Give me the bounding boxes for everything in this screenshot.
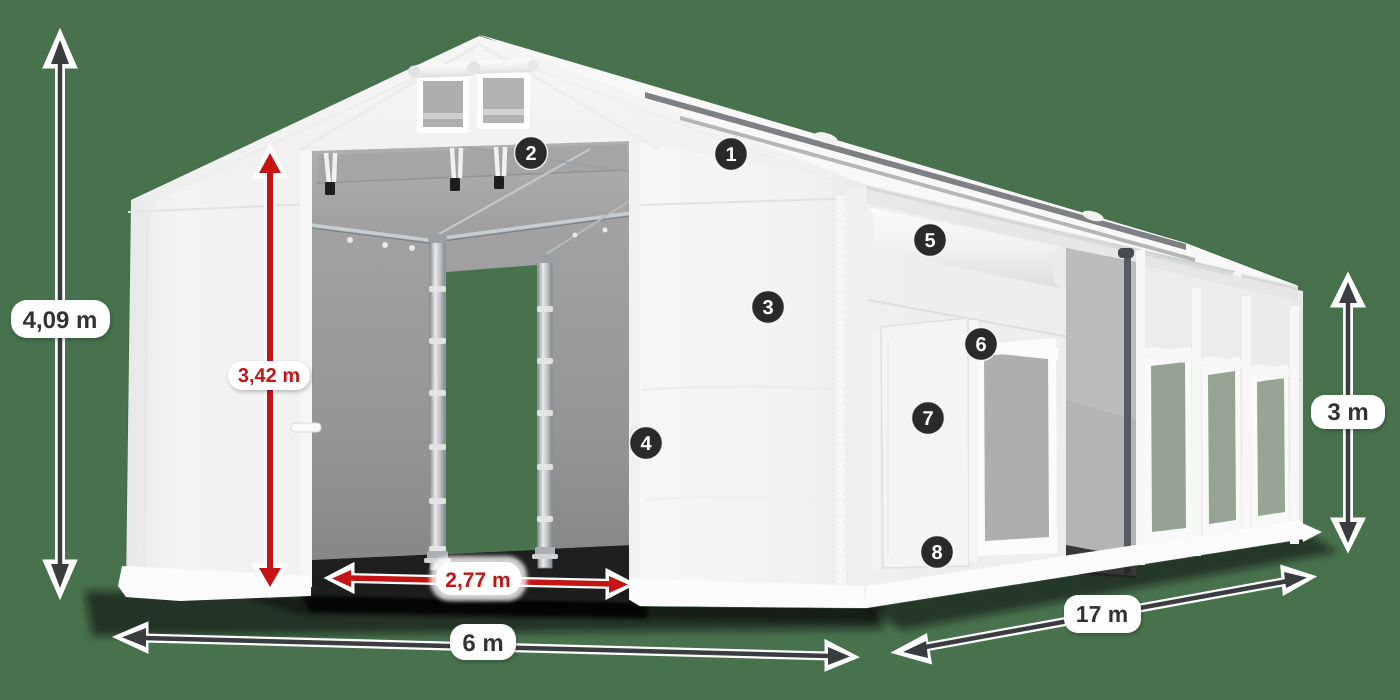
svg-text:2: 2 [525,143,536,165]
svg-text:3: 3 [762,297,773,319]
svg-text:8: 8 [931,542,942,564]
svg-text:6 m: 6 m [462,630,503,657]
svg-text:4: 4 [640,433,652,455]
svg-text:1: 1 [725,144,736,166]
svg-text:2,77 m: 2,77 m [445,569,510,592]
svg-text:4,09 m: 4,09 m [23,307,98,334]
svg-text:5: 5 [924,230,935,252]
svg-text:17 m: 17 m [1076,601,1128,627]
svg-text:7: 7 [922,408,933,430]
svg-text:3,42 m: 3,42 m [238,365,300,387]
svg-text:6: 6 [975,334,986,356]
svg-text:3 m: 3 m [1327,399,1368,426]
